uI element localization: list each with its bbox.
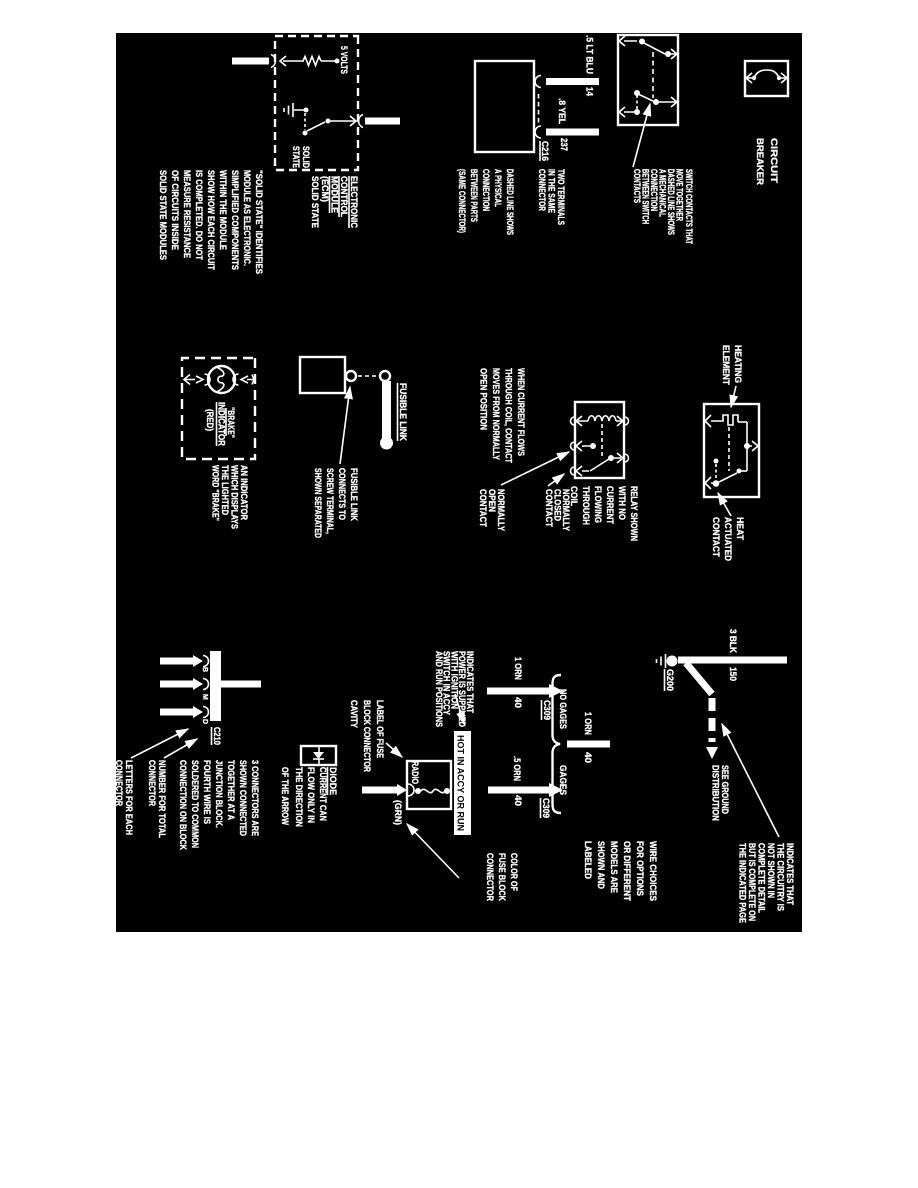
svg-text:COLOR OF: COLOR OF (508, 853, 519, 891)
svg-text:SHOW HOW EACH CIRCUIT: SHOW HOW EACH CIRCUIT (205, 170, 216, 270)
svg-text:BETWEEN PARTS: BETWEEN PARTS (468, 169, 479, 222)
svg-text:CURRENT: CURRENT (604, 486, 615, 524)
svg-text:3 BLK: 3 BLK (727, 629, 738, 653)
svg-text:CONTACT: CONTACT (477, 489, 488, 527)
svg-text:HEAT: HEAT (734, 517, 745, 540)
svg-text:THROUGH COIL, CONTACT: THROUGH COIL, CONTACT (503, 368, 514, 463)
svg-text:14: 14 (584, 87, 595, 97)
svg-text:THE INDICATED PAGE: THE INDICATED PAGE (737, 843, 748, 923)
svg-text:SHOWN SEPARATED: SHOWN SEPARATED (312, 468, 323, 538)
svg-text:DASHED LINE SHOWS: DASHED LINE SHOWS (504, 169, 515, 235)
svg-text:CONNECTION ON BLOCK: CONNECTION ON BLOCK (177, 760, 188, 850)
svg-text:C210: C210 (211, 727, 222, 745)
svg-text:G200: G200 (664, 669, 675, 691)
svg-text:WIRE CHOICES: WIRE CHOICES (647, 841, 658, 901)
svg-text:LABELED: LABELED (582, 841, 593, 879)
svg-text:FOR OPTIONS: FOR OPTIONS (634, 841, 645, 896)
svg-text:40: 40 (512, 795, 523, 806)
svg-text:LABEL OF FUSE: LABEL OF FUSE (374, 700, 385, 758)
svg-text:"SOLID STATE" IDENTIFIES: "SOLID STATE" IDENTIFIES (253, 170, 264, 274)
svg-text:5 VOLTS: 5 VOLTS (338, 46, 349, 74)
svg-text:CONNECTION: CONNECTION (480, 169, 491, 211)
svg-text:RELAY SHOWN: RELAY SHOWN (628, 486, 639, 541)
svg-text:CONNECTOR: CONNECTOR (484, 853, 495, 901)
svg-text:40: 40 (582, 752, 593, 763)
svg-text:WITH NO: WITH NO (616, 486, 627, 520)
svg-text:(GRN): (GRN) (392, 800, 403, 825)
svg-text:ELEMENT: ELEMENT (720, 345, 731, 385)
svg-text:AND RUN POSITIONS: AND RUN POSITIONS (433, 651, 444, 727)
svg-text:OF THE ARROW: OF THE ARROW (279, 767, 290, 825)
svg-text:FLOWING: FLOWING (592, 486, 603, 523)
svg-text:1 ORN: 1 ORN (512, 657, 523, 680)
svg-text:150: 150 (727, 667, 738, 681)
svg-text:(SAME CONNECTOR): (SAME CONNECTOR) (456, 169, 467, 233)
svg-text:OR DIFFERENT: OR DIFFERENT (621, 841, 632, 901)
svg-text:SCREW TERMINAL,: SCREW TERMINAL, (324, 468, 335, 534)
svg-text:IS COMPLETED. DO NOT: IS COMPLETED. DO NOT (193, 170, 204, 260)
svg-text:SHOWN CONNECTED: SHOWN CONNECTED (237, 760, 248, 836)
svg-text:FUSIBLE LINK: FUSIBLE LINK (348, 468, 359, 521)
svg-text:CONNECTS TO: CONNECTS TO (336, 468, 347, 520)
svg-text:HOT IN ACCY OR RUN: HOT IN ACCY OR RUN (456, 735, 466, 831)
svg-text:WHEN CURRENT FLOWS: WHEN CURRENT FLOWS (515, 368, 526, 456)
svg-text:CIRCUIT: CIRCUIT (768, 138, 779, 183)
svg-text:237: 237 (558, 138, 569, 151)
svg-text:SIMPLIFIED COMPONENTS: SIMPLIFIED COMPONENTS (229, 170, 240, 270)
svg-text:A PHYSICAL: A PHYSICAL (492, 169, 503, 207)
svg-text:NO GAGES: NO GAGES (557, 689, 568, 729)
svg-text:TOGETHER AT A: TOGETHER AT A (225, 760, 236, 820)
svg-text:3 CONNECTORS ARE: 3 CONNECTORS ARE (249, 760, 260, 836)
svg-text:CAVITY: CAVITY (348, 700, 359, 729)
svg-text:CURRENT CAN: CURRENT CAN (317, 767, 328, 821)
svg-text:(RED): (RED) (204, 409, 215, 431)
svg-text:1 ORN: 1 ORN (582, 712, 593, 735)
svg-text:D: D (201, 719, 208, 724)
svg-text:CONNECTOR: CONNECTOR (536, 169, 547, 211)
svg-text:C309: C309 (541, 700, 552, 720)
svg-text:SOLID STATE: SOLID STATE (309, 176, 320, 228)
svg-text:40: 40 (512, 697, 523, 708)
svg-text:WORD "BRAKE": WORD "BRAKE" (210, 465, 221, 521)
svg-text:.8 YEL: .8 YEL (556, 98, 567, 124)
svg-text:MEASURE RESISTANCE: MEASURE RESISTANCE (181, 170, 192, 258)
svg-text:SOLID STATE MODULES: SOLID STATE MODULES (157, 170, 168, 260)
svg-text:MODELS ARE: MODELS ARE (608, 841, 619, 893)
svg-text:CONNECTOR: CONNECTOR (146, 760, 157, 806)
svg-text:M: M (201, 694, 208, 700)
svg-text:RADIO: RADIO (409, 761, 420, 784)
svg-text:MODULE AS ELECTRONIC.: MODULE AS ELECTRONIC. (241, 170, 252, 266)
svg-text:DISTRIBUTION: DISTRIBUTION (710, 765, 721, 821)
svg-text:FUSE BLOCK: FUSE BLOCK (496, 853, 507, 901)
svg-text:B: B (201, 667, 208, 672)
svg-text:MOVES FROM NORMALLY: MOVES FROM NORMALLY (490, 368, 501, 461)
svg-text:HEATING: HEATING (732, 345, 743, 383)
svg-text:THROUGH: THROUGH (580, 486, 591, 525)
svg-text:OF CIRCUITS INSIDE: OF CIRCUITS INSIDE (169, 170, 180, 250)
svg-text:.5 ORN: .5 ORN (511, 756, 522, 781)
svg-text:ACTUATED: ACTUATED (722, 517, 733, 561)
svg-text:CONTACT: CONTACT (543, 489, 554, 527)
svg-text:BLOCK CONNECTOR: BLOCK CONNECTOR (361, 700, 372, 772)
svg-text:.5 LT BLU: .5 LT BLU (584, 35, 595, 74)
svg-text:GAGES: GAGES (557, 765, 568, 795)
svg-text:CONTACTS: CONTACTS (631, 169, 642, 203)
svg-text:WITHIN THE MODULE: WITHIN THE MODULE (217, 170, 228, 250)
svg-text:FLOW ONLY IN: FLOW ONLY IN (305, 767, 316, 823)
svg-text:STATE: STATE (290, 146, 301, 168)
svg-text:CONNECTOR: CONNECTOR (114, 760, 124, 806)
svg-text:CONTACT: CONTACT (710, 517, 721, 557)
svg-text:THE DIRECTION: THE DIRECTION (293, 767, 304, 827)
svg-text:FUSIBLE LINK: FUSIBLE LINK (397, 383, 408, 441)
svg-text:C309: C309 (540, 798, 551, 818)
svg-text:SOLDERED TO COMMON: SOLDERED TO COMMON (189, 760, 200, 848)
svg-text:SHOWN AND: SHOWN AND (595, 841, 606, 889)
svg-text:FOURTH WIRE IS: FOURTH WIRE IS (201, 760, 212, 824)
svg-text:BREAKER: BREAKER (754, 138, 765, 185)
svg-text:JUNCTION BLOCK.: JUNCTION BLOCK. (213, 760, 224, 828)
svg-text:OPEN POSITION: OPEN POSITION (478, 368, 489, 430)
